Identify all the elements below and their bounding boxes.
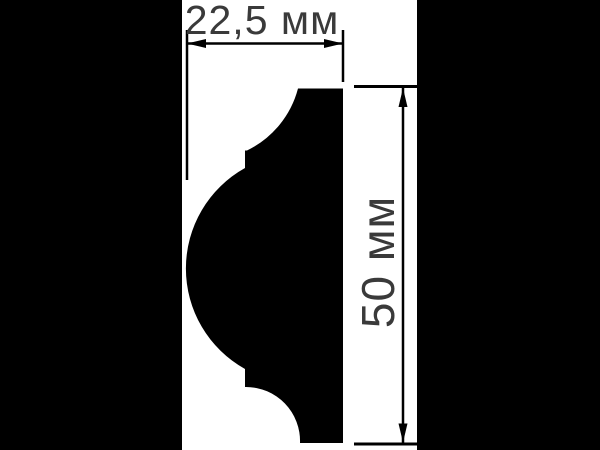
width-dimension-label: 22,5 мм: [185, 0, 340, 43]
height-dimension-label: 50 мм: [352, 196, 404, 328]
height-dimension: 50 мм: [352, 87, 418, 445]
profile-silhouette: [186, 89, 343, 444]
height-arrow-down-icon: [399, 424, 408, 443]
height-arrow-up-icon: [399, 88, 408, 107]
drawing-canvas: 22,5 мм 50 мм: [0, 0, 600, 450]
technical-drawing: 22,5 мм 50 мм: [0, 0, 600, 450]
